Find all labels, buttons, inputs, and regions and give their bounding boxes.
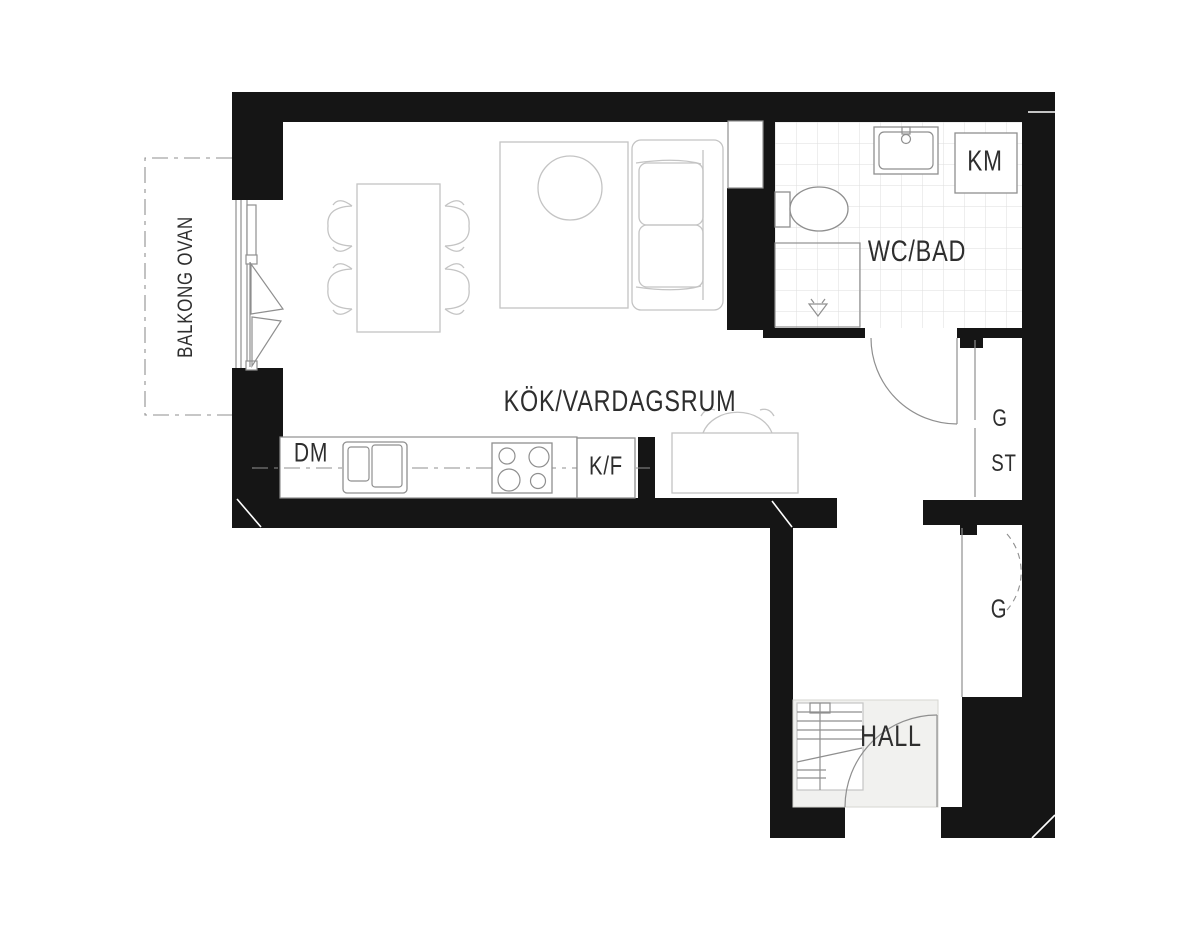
room-label-hall: HALL [860, 720, 922, 754]
label-cleaning-cabinet: ST [991, 450, 1016, 478]
stairs [797, 703, 863, 790]
label-wardrobe-upper: G [992, 405, 1007, 433]
toilet [775, 187, 848, 231]
floor-plan: BALKONG OVAN KÖK/VARDAGSRUM WC/BAD KM DM… [0, 0, 1200, 942]
duct-niche [728, 121, 763, 188]
label-fridge-freezer: K/F [589, 451, 623, 482]
bathroom-sink [874, 127, 938, 174]
sofa [632, 140, 723, 310]
round-table [538, 156, 602, 220]
label-dishwasher: DM [294, 438, 328, 469]
dining-table [328, 184, 469, 332]
closet-door-swing [1007, 534, 1021, 610]
desk [672, 409, 798, 493]
kitchen-sink [343, 442, 407, 493]
balcony-door-window [236, 200, 283, 370]
label-balcony: BALKONG OVAN [174, 216, 198, 358]
room-label-bathroom: WC/BAD [868, 235, 966, 269]
bathroom-door [871, 338, 957, 424]
label-wardrobe-hall: G [991, 594, 1008, 625]
room-label-kitchen-living: KÖK/VARDAGSRUM [504, 385, 737, 419]
label-washing-machine: KM [967, 146, 1002, 179]
stove [492, 443, 552, 493]
